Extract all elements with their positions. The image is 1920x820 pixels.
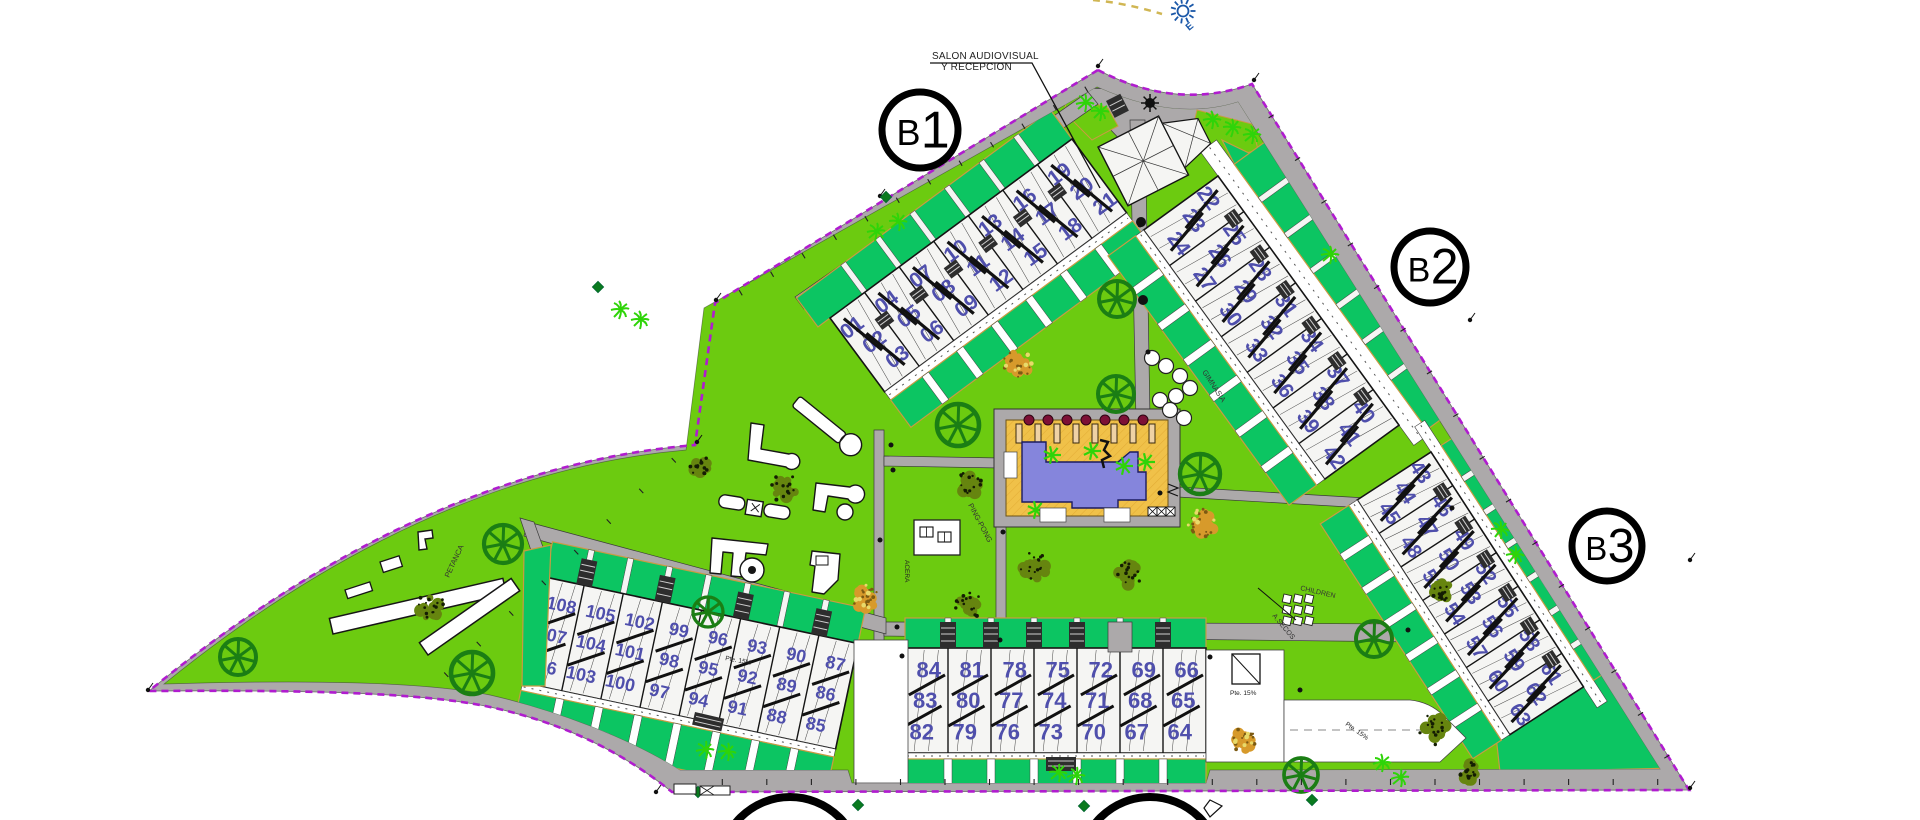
svg-text:B: B	[1408, 251, 1431, 289]
svg-text:87: 87	[823, 652, 847, 676]
svg-text:B: B	[1585, 530, 1607, 567]
svg-text:99: 99	[667, 618, 691, 642]
svg-text:92: 92	[736, 665, 760, 689]
svg-text:98: 98	[657, 648, 681, 672]
svg-text:96: 96	[706, 627, 730, 651]
svg-text:2: 2	[1431, 239, 1459, 295]
svg-text:Pte. 15%: Pte. 15%	[1230, 690, 1257, 697]
svg-text:3: 3	[1608, 520, 1635, 573]
svg-text:86: 86	[814, 682, 838, 706]
svg-text:93: 93	[745, 635, 769, 659]
svg-text:B: B	[896, 112, 920, 153]
svg-text:89: 89	[775, 673, 799, 697]
svg-text:SALON AUDIOVISUAL: SALON AUDIOVISUAL	[932, 51, 1039, 62]
svg-text:91: 91	[726, 696, 750, 720]
svg-text:94: 94	[687, 688, 711, 712]
svg-text:95: 95	[696, 657, 720, 681]
svg-text:97: 97	[647, 679, 671, 703]
svg-text:85: 85	[804, 713, 828, 737]
svg-text:1: 1	[921, 101, 950, 159]
svg-text:90: 90	[784, 643, 808, 667]
svg-text:ACERA: ACERA	[903, 560, 910, 583]
svg-text:88: 88	[765, 704, 789, 728]
